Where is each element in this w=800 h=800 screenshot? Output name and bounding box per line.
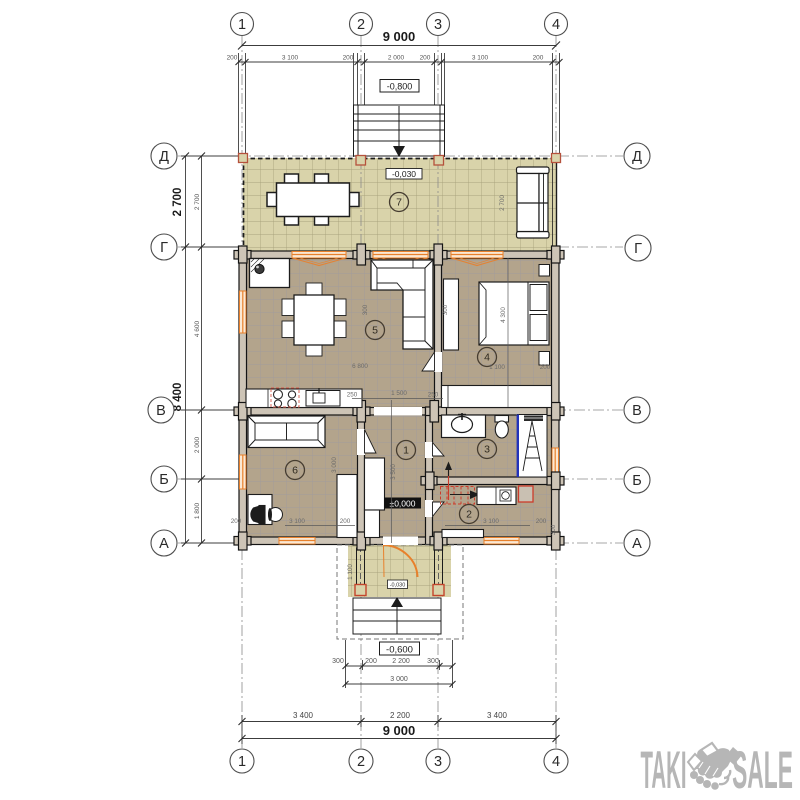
svg-text:4: 4 xyxy=(484,352,490,364)
svg-text:3 100: 3 100 xyxy=(483,518,499,525)
svg-text:-0,800: -0,800 xyxy=(387,82,413,92)
svg-text:9 000: 9 000 xyxy=(383,29,416,44)
svg-text:4: 4 xyxy=(552,17,560,33)
svg-text:200: 200 xyxy=(540,364,551,371)
svg-text:-0,030: -0,030 xyxy=(390,583,406,589)
svg-text:4 300: 4 300 xyxy=(500,307,507,323)
svg-text:3: 3 xyxy=(484,444,490,456)
svg-text:200: 200 xyxy=(231,518,242,525)
svg-text:2 200: 2 200 xyxy=(390,711,411,720)
svg-text:200: 200 xyxy=(420,55,431,62)
svg-text:2 700: 2 700 xyxy=(194,193,201,210)
svg-text:1 500: 1 500 xyxy=(391,390,407,397)
svg-text:А: А xyxy=(632,536,642,552)
svg-text:±0,000: ±0,000 xyxy=(390,499,416,509)
svg-text:Б: Б xyxy=(632,473,642,489)
svg-text:3 100: 3 100 xyxy=(472,55,489,62)
svg-text:Б: Б xyxy=(159,472,169,488)
svg-text:300: 300 xyxy=(550,524,557,535)
svg-text:-0,030: -0,030 xyxy=(392,169,416,179)
svg-text:1 100: 1 100 xyxy=(347,564,354,580)
svg-text:200: 200 xyxy=(343,55,354,62)
svg-text:3 100: 3 100 xyxy=(282,55,299,62)
svg-text:4: 4 xyxy=(552,754,560,770)
svg-text:250: 250 xyxy=(347,392,358,399)
svg-text:200: 200 xyxy=(365,658,377,665)
svg-text:Д: Д xyxy=(632,149,642,165)
svg-text:3: 3 xyxy=(434,17,442,33)
svg-text:9 000: 9 000 xyxy=(383,723,416,738)
svg-text:1: 1 xyxy=(403,445,409,457)
svg-text:Д: Д xyxy=(159,149,169,165)
svg-text:6 800: 6 800 xyxy=(352,363,368,370)
svg-text:7: 7 xyxy=(396,197,402,209)
svg-text:2: 2 xyxy=(466,509,472,521)
svg-text:В: В xyxy=(632,403,642,419)
svg-text:300: 300 xyxy=(332,658,344,665)
svg-text:5: 5 xyxy=(372,325,378,337)
svg-text:3 000: 3 000 xyxy=(390,676,408,683)
svg-text:-0,600: -0,600 xyxy=(386,645,413,656)
svg-text:2 000: 2 000 xyxy=(388,55,405,62)
svg-text:2 700: 2 700 xyxy=(499,195,506,211)
svg-text:TAKI: TAKI xyxy=(640,742,686,800)
svg-text:3 400: 3 400 xyxy=(293,711,314,720)
svg-text:1 800: 1 800 xyxy=(194,502,201,519)
svg-text:1: 1 xyxy=(238,754,246,770)
svg-text:SALE: SALE xyxy=(732,740,793,800)
svg-text:200: 200 xyxy=(533,55,544,62)
svg-text:1 100: 1 100 xyxy=(489,364,505,371)
svg-text:6: 6 xyxy=(292,465,298,477)
svg-text:В: В xyxy=(156,403,166,419)
svg-text:300: 300 xyxy=(442,304,449,315)
svg-text:А: А xyxy=(159,536,169,552)
svg-text:300: 300 xyxy=(427,658,439,665)
svg-text:250: 250 xyxy=(428,392,439,399)
svg-text:3: 3 xyxy=(434,754,442,770)
svg-text:3 100: 3 100 xyxy=(289,518,305,525)
svg-text:4 600: 4 600 xyxy=(194,320,201,337)
svg-text:2 200: 2 200 xyxy=(392,658,410,665)
svg-text:Г: Г xyxy=(160,240,168,256)
svg-text:200: 200 xyxy=(227,55,238,62)
svg-text:3 000: 3 000 xyxy=(331,457,338,473)
svg-text:200: 200 xyxy=(340,518,351,525)
svg-text:Г: Г xyxy=(634,241,642,257)
svg-text:3 400: 3 400 xyxy=(487,711,508,720)
svg-text:200: 200 xyxy=(536,518,547,525)
svg-text:2: 2 xyxy=(357,754,365,770)
svg-text:2 700: 2 700 xyxy=(172,188,184,217)
svg-text:300: 300 xyxy=(362,304,369,315)
svg-text:3 500: 3 500 xyxy=(390,464,397,480)
svg-text:2: 2 xyxy=(357,17,365,33)
svg-text:2 000: 2 000 xyxy=(194,436,201,453)
svg-text:1: 1 xyxy=(238,17,246,33)
